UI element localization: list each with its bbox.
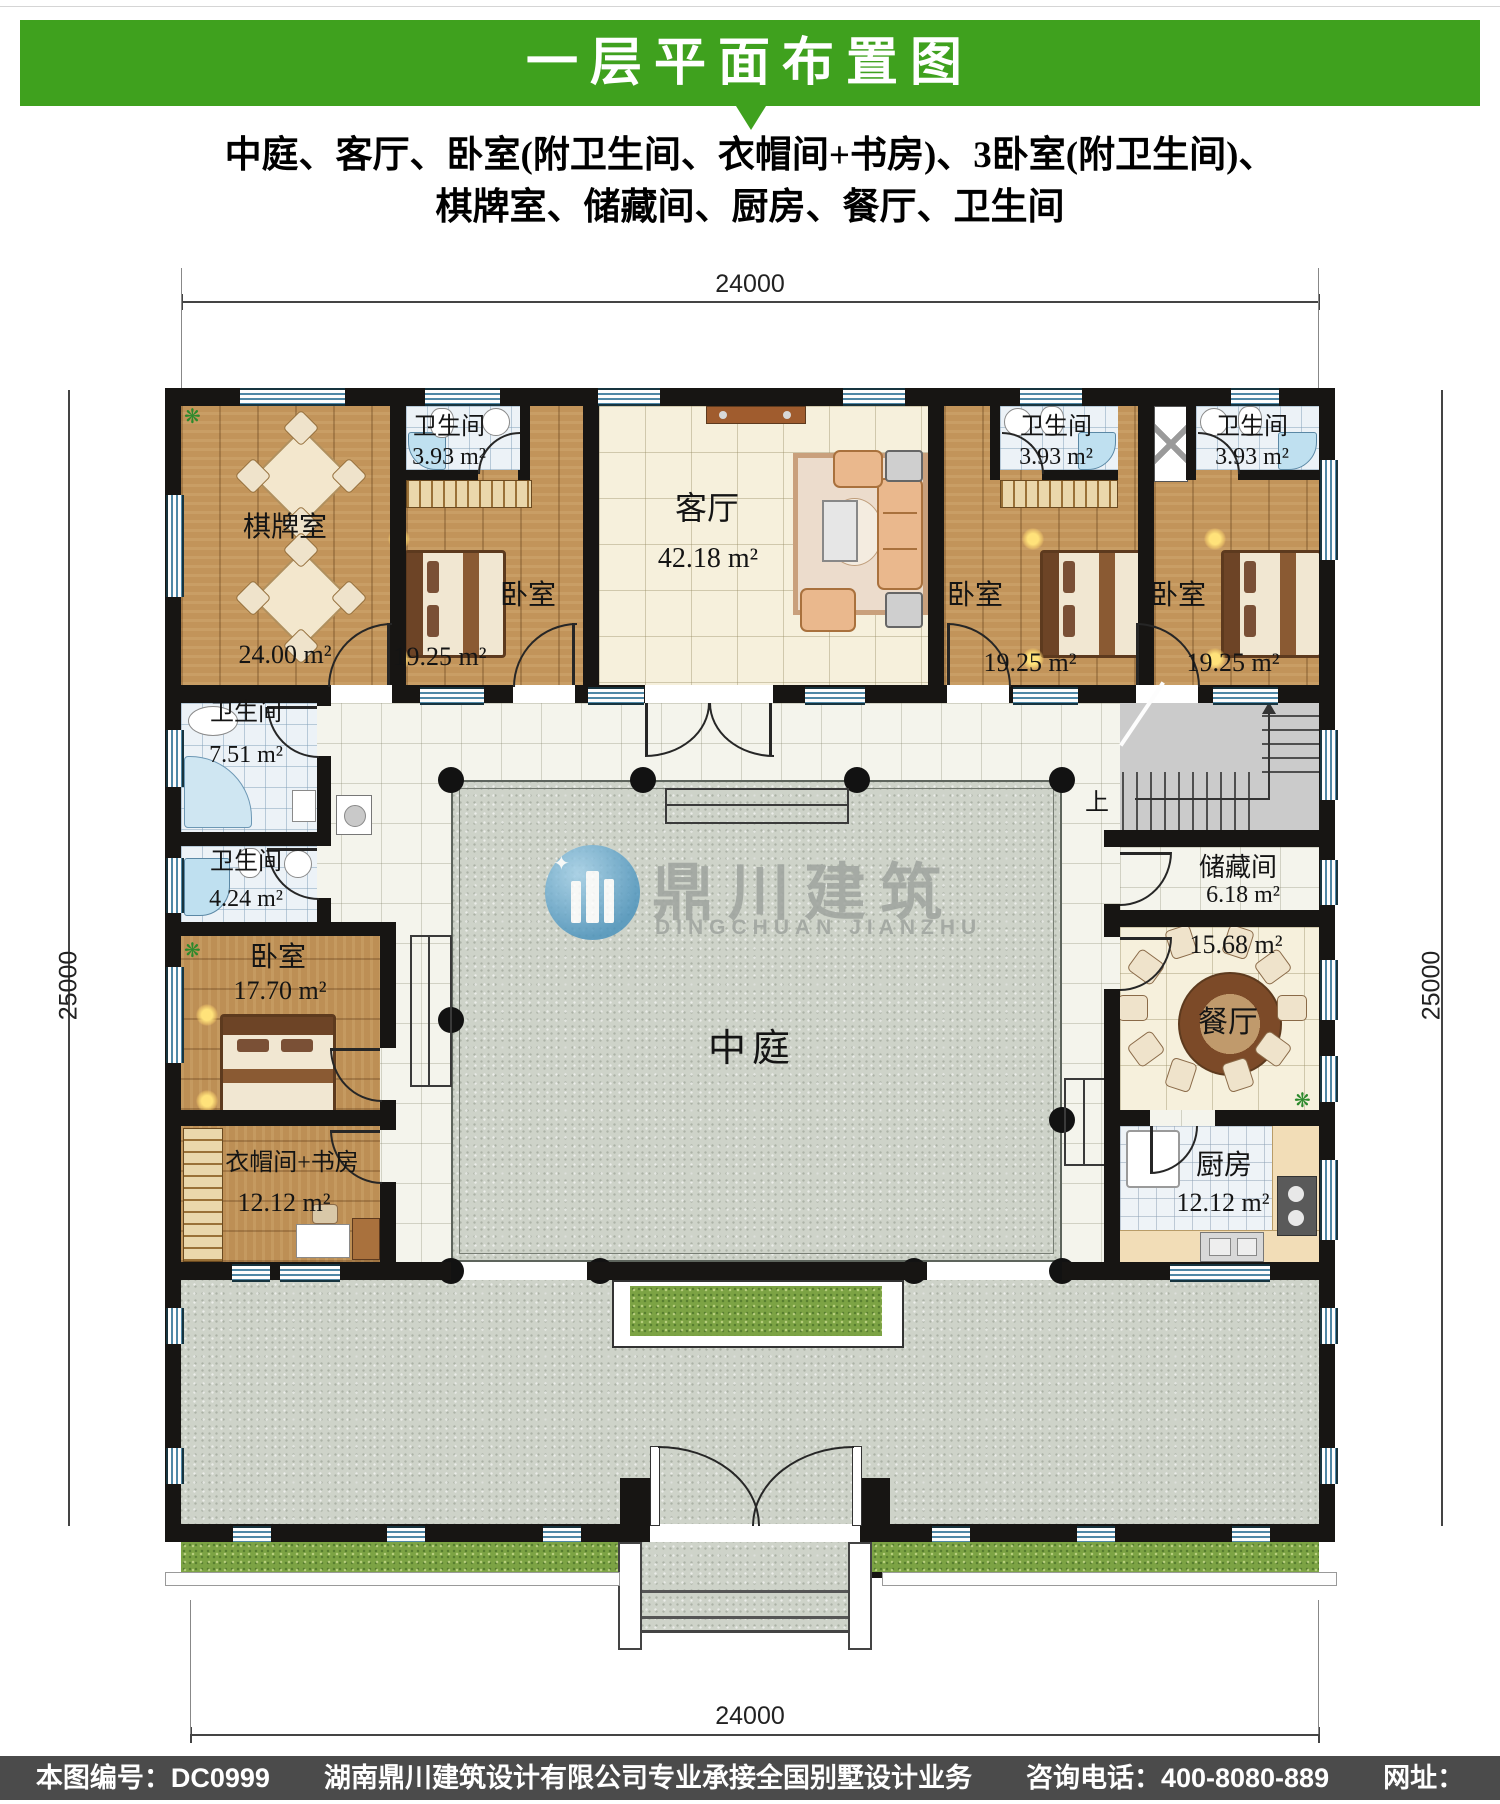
wall [380,1182,396,1262]
room-area: 42.18 m² [618,543,798,575]
room-label: 卫生间 [176,849,316,877]
window [1320,1448,1338,1484]
wall [1104,830,1335,847]
wall [165,1110,396,1126]
door-leaf [572,623,575,685]
window [1213,687,1278,705]
pillow [427,561,439,593]
window [166,1448,184,1484]
sink-basin [1209,1238,1231,1256]
bed-runner [1280,553,1296,655]
porch-rail [618,1542,642,1650]
dim-extension-line [181,268,182,388]
window [1013,687,1078,705]
room-label: 卧室 [1098,580,1258,612]
porch-edge [642,1630,848,1633]
window [1320,1056,1338,1102]
wall [317,756,331,846]
header-pointer-triangle [736,106,766,130]
window [1320,730,1338,800]
pillow [1063,605,1075,637]
room-label: 卫生间 [176,700,316,728]
dim-top-value: 24000 [650,270,850,299]
stairs-up-label: 上 [1082,790,1112,818]
watermark-en: DINGCHUAN JIANZHU [655,916,1075,940]
room-label: 卧室 [448,580,608,612]
sofa-seam [883,512,917,514]
room-label: 卫生间 [986,414,1126,442]
room-label: 厨房 [1144,1150,1304,1182]
porch-step-line [642,1590,848,1593]
door-leaf [330,1130,380,1133]
decor [719,411,727,419]
porch-rail [848,1542,872,1650]
wall [1215,1110,1335,1126]
subtitle-line2: 棋牌室、储藏间、厨房、餐厅、卫生间 [100,182,1400,234]
window [232,1264,270,1282]
logo-building-bar [586,871,599,923]
header-bar: 一层平面布置图 [20,20,1480,106]
bed-headboard [223,1017,333,1035]
wall [165,832,331,846]
wall [1104,989,1120,1110]
room-area: 19.25 m² [1153,648,1313,678]
wall [583,406,599,685]
column-dot [1049,767,1075,793]
column-dot [438,767,464,793]
courtyard-step-west [410,935,452,1087]
bath-cabinet [292,790,316,822]
room-area: 19.25 m² [950,648,1110,678]
page-edge-line [0,6,1500,7]
bedside-lamp [196,1004,218,1026]
step-line [428,937,430,1085]
window [166,967,184,1063]
stair-arrow-line [1135,798,1269,800]
page-title: 一层平面布置图 [20,20,1480,106]
planter-grass [630,1286,882,1336]
step-line [667,804,847,806]
stair-treads [1122,772,1262,830]
sink-basin [1237,1238,1257,1256]
wall [928,406,944,685]
subtitle: 中庭、客厅、卧室(附卫生间、衣帽间+书房)、3卧室(附卫生间)、 棋牌室、储藏间… [100,130,1400,234]
window [166,1308,184,1344]
room-area: 7.51 m² [176,742,316,770]
window [805,687,865,705]
room-area: 4.24 m² [176,886,316,914]
grass-strip [181,1542,618,1572]
window [240,388,345,406]
wall [1104,1126,1120,1262]
window [1320,1308,1338,1344]
pillow [1063,561,1075,593]
pillow [237,1039,269,1052]
step-line [1083,1080,1085,1164]
wall [380,922,396,1048]
tv-cabinet [706,406,806,424]
wall [165,922,396,936]
grass-sill [165,1572,620,1586]
chair [1118,995,1148,1021]
window [1231,388,1279,406]
washer-door [344,805,366,827]
room-area: 3.93 m² [1182,444,1322,472]
pillow [281,1039,313,1052]
wall [1104,904,1120,937]
room-area: 19.25 m² [360,642,520,672]
grass-sill [882,1572,1337,1586]
dim-top-line [181,301,1320,303]
wall [520,406,530,480]
bed-runner [223,1069,333,1083]
room-area: 15.68 m² [1156,930,1316,960]
room-area: 12.12 m² [1143,1188,1303,1218]
side-table [885,450,923,482]
room-area: 24.00 m² [205,640,365,670]
logo-building-bar [571,881,581,923]
courtyard-step-north [665,788,849,824]
room-label: 餐厅 [1165,1006,1291,1041]
window [166,495,184,597]
floor-plan-page: 一层平面布置图 中庭、客厅、卧室(附卫生间、衣帽间+书房)、3卧室(附卫生间)、… [0,0,1500,1804]
window [280,1264,340,1282]
room-label: 卧室 [198,942,358,974]
bed [220,1014,336,1116]
window [598,388,660,406]
wall [1104,1110,1150,1126]
wall [1104,910,1335,927]
footer-text: 本图编号：DC0999 湖南鼎川建筑设计有限公司专业承接全国别墅设计业务 咨询电… [0,1756,1500,1800]
door-leaf [330,1048,380,1051]
room-area: 3.93 m² [379,444,519,472]
stair-arrow-line [1268,712,1270,800]
footer-bar: 本图编号：DC0999 湖南鼎川建筑设计有限公司专业承接全国别墅设计业务 咨询电… [0,1756,1500,1800]
dim-extension-line [1318,268,1319,388]
decor [783,411,791,419]
door-leaf [769,703,772,755]
column-dot [630,767,656,793]
room-label: 卫生间 [1182,414,1322,442]
door-leaf [1136,623,1139,685]
room-label: 衣帽间+书房 [202,1150,382,1178]
bedside-lamp [1022,528,1044,550]
window [1320,960,1338,1020]
plant-icon: ❋ [184,404,201,429]
window [588,687,644,705]
bedside-lamp [1204,528,1226,550]
wall [317,898,331,922]
window [425,388,500,406]
kitchen-sink [1200,1232,1264,1262]
washing-machine [336,795,372,835]
logo-building-bar [604,879,614,923]
logo-star: ✦ [553,851,570,876]
window [1020,388,1082,406]
room-label: 中庭 [667,1028,837,1072]
wall [317,685,331,706]
dingchuan-logo-icon: ✦ [545,845,640,940]
room-label: 卫生间 [379,414,519,442]
dim-extension-line [190,1600,191,1734]
wardrobe [406,480,532,508]
room-area: 12.12 m² [204,1188,364,1218]
room-label: 棋牌室 [205,512,365,544]
cabinet [352,1218,380,1260]
room-label: 储藏间 [1158,853,1318,883]
room-area: 3.93 m² [986,444,1126,472]
dim-bottom-line [190,1734,1320,1736]
porch-step-line [642,1616,848,1619]
window [420,687,484,705]
grass-strip [872,1542,1319,1572]
wall [380,1100,396,1130]
room-area: 17.70 m² [200,976,360,1006]
door-leaf [645,703,648,755]
dim-extension-line [1318,1600,1319,1734]
room-label: 卧室 [895,580,1055,612]
courtyard-step-east [1064,1078,1108,1166]
window [1320,1160,1338,1240]
room-area: 6.18 m² [1163,882,1323,910]
bedside-lamp [196,1090,218,1112]
dim-right-value: 25000 [1418,906,1447,1066]
room-label: 客厅 [627,490,787,527]
wardrobe [1000,480,1118,508]
subtitle-line1: 中庭、客厅、卧室(附卫生间、衣帽间+书房)、3卧室(附卫生间)、 [100,130,1400,182]
dim-bottom-value: 24000 [650,1702,850,1731]
window [843,388,905,406]
pillow [427,605,439,637]
armchair [800,588,856,632]
sofa-seam [883,548,917,550]
desk [296,1224,350,1258]
coffee-table [822,500,858,562]
window [1320,460,1338,560]
window [1170,1264,1270,1282]
wall [587,1262,927,1280]
dim-left-value: 25000 [55,906,84,1066]
sofa [877,478,923,590]
armchair [833,450,883,488]
bed-headboard [407,553,423,655]
